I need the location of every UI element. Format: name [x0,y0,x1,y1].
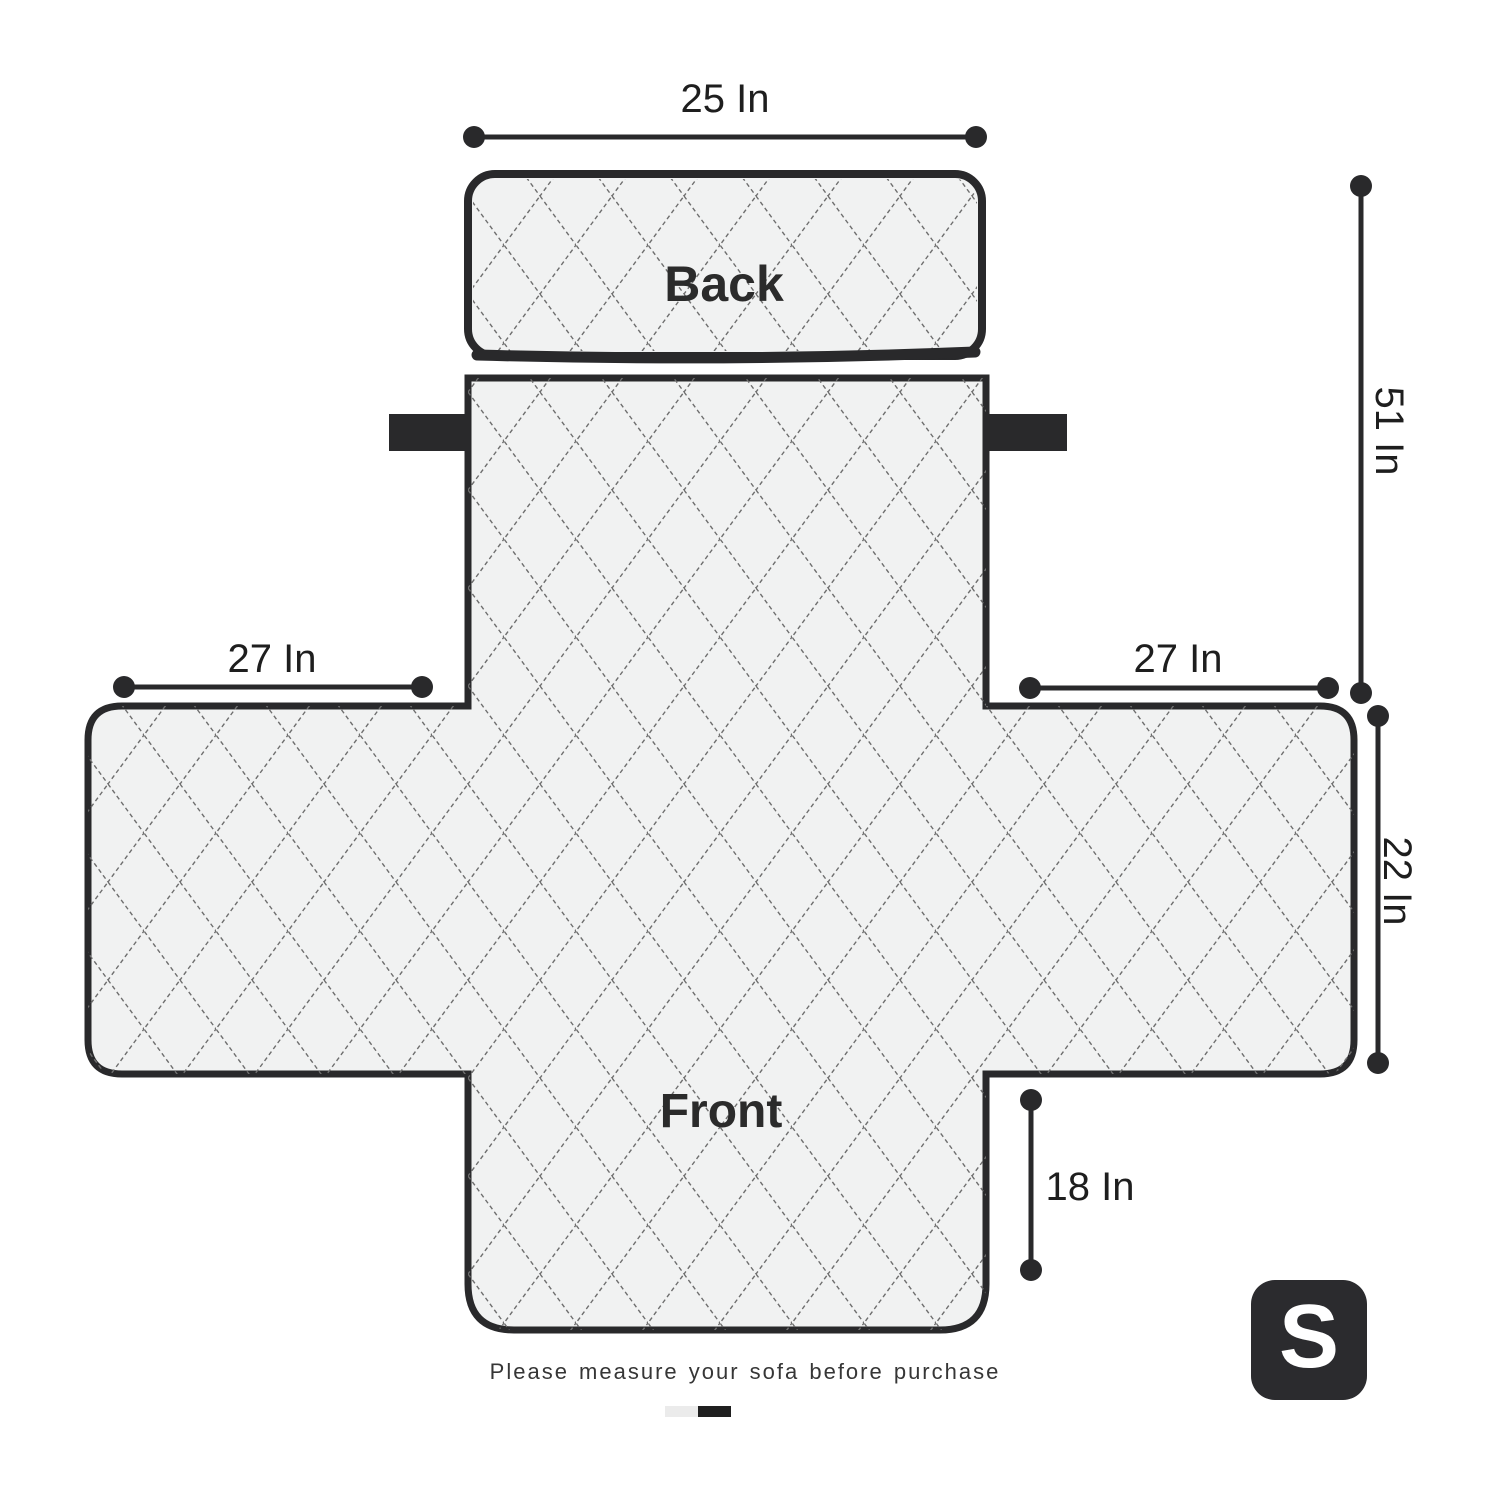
swatch-dark [698,1406,731,1417]
cover-body-shape [88,378,1354,1330]
dim-label-left-arm: 27 In [228,639,317,679]
body-quilt-pattern [88,378,1354,1330]
sofa-cover-outline-graphic [0,0,1500,1500]
left-strap [389,414,471,451]
front-label: Front [660,1088,783,1136]
dim-label-front-drop: 18 In [1046,1167,1135,1207]
dim-label-back-width: 25 In [681,79,770,119]
back-label: Back [664,259,784,309]
dim-line-back-width [463,126,987,148]
dim-label-total-length: 51 In [1369,387,1409,476]
measure-note: Please measure your sofa before purchase [490,1359,1001,1385]
swatch-light [665,1406,698,1417]
size-badge: S [1251,1280,1367,1400]
dim-line-front-drop [1020,1089,1042,1281]
sofa-cover-size-diagram: 25 In 51 In 27 In 27 In 22 In 18 In Back… [0,0,1500,1500]
dim-label-right-arm: 27 In [1134,639,1223,679]
dim-label-arm-depth: 22 In [1377,837,1417,926]
back-panel-bottom-seam [477,352,975,358]
right-strap [985,414,1067,451]
size-badge-letter: S [1279,1292,1339,1388]
